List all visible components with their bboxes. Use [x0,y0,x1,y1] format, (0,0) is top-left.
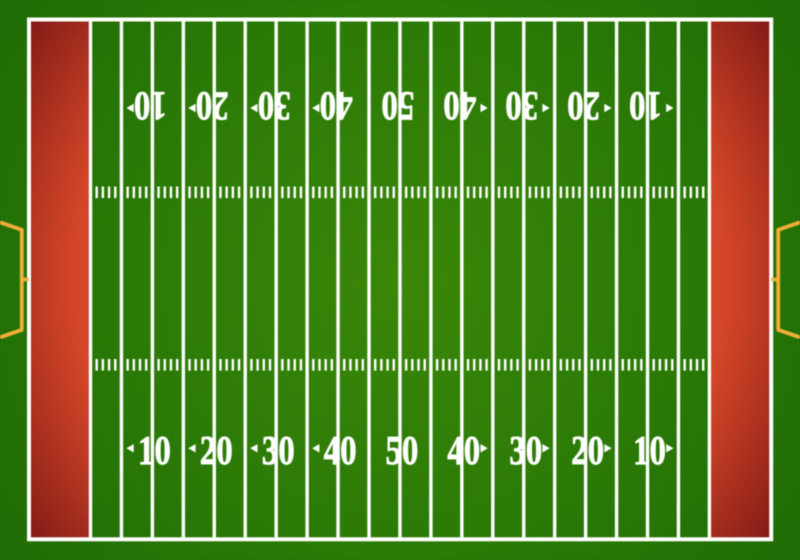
svg-text:40: 40 [320,84,353,130]
svg-text:40: 40 [447,427,480,473]
svg-text:50: 50 [385,427,418,473]
svg-text:20: 20 [567,84,600,130]
svg-text:20: 20 [196,84,229,130]
svg-text:40: 40 [324,427,357,473]
svg-text:10: 10 [134,84,167,130]
svg-text:10: 10 [138,427,171,473]
svg-text:20: 20 [200,427,233,473]
svg-text:50: 50 [381,84,414,130]
svg-text:10: 10 [629,84,662,130]
svg-text:40: 40 [443,84,476,130]
svg-text:30: 30 [258,84,291,130]
svg-text:10: 10 [633,427,666,473]
svg-text:30: 30 [509,427,542,473]
svg-text:20: 20 [571,427,604,473]
svg-text:30: 30 [505,84,538,130]
svg-text:30: 30 [262,427,295,473]
